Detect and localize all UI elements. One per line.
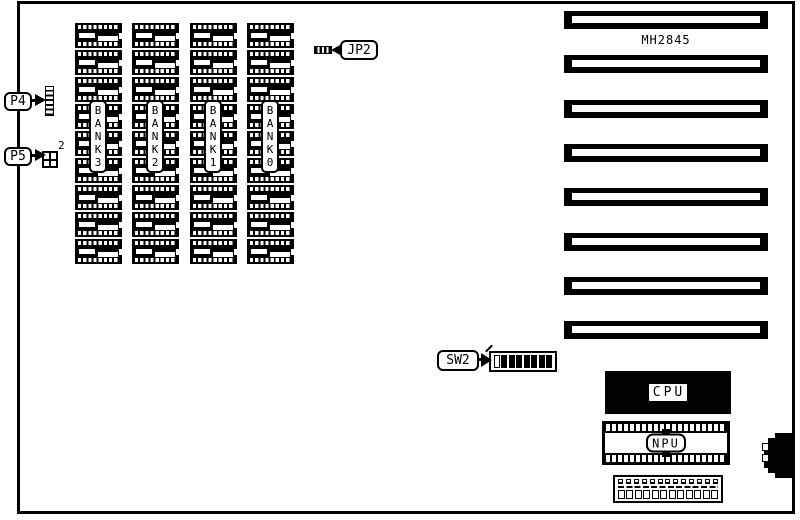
chip-notch: [119, 141, 122, 147]
chip-notch: [119, 60, 122, 66]
memory-column: BANK1: [190, 23, 237, 267]
memory-chip: [247, 212, 294, 237]
cpu-chip: CPU: [605, 371, 731, 414]
memory-chip: [132, 185, 179, 210]
chip-notch: [234, 195, 237, 201]
chip-slot-left: [79, 249, 95, 254]
slot-contact-strip: [572, 149, 760, 156]
slot-contact-strip: [572, 282, 760, 289]
connector-cell: [660, 490, 667, 499]
memory-chip: [75, 77, 122, 102]
connector-cell: [650, 479, 655, 484]
memory-column: BANK2: [132, 23, 179, 267]
chip-notch: [291, 87, 294, 93]
chip-slot-right: [98, 225, 118, 230]
memory-chip: [247, 50, 294, 75]
connector-cell: [694, 490, 701, 499]
board-chip-label: MH2845: [564, 33, 768, 47]
memory-chip: [190, 185, 237, 210]
connector-cell: [689, 479, 694, 484]
expansion-slot: [564, 11, 768, 29]
chip-slot-left: [79, 222, 95, 227]
chip-slot-left: [194, 87, 210, 92]
connector-cell: [626, 490, 633, 499]
bank-label: BANK2: [146, 100, 164, 173]
npu-label-tab-bottom: [662, 452, 670, 457]
memory-column: BANK0: [247, 23, 294, 267]
chip-notch: [176, 114, 179, 120]
chip-slot-left: [79, 195, 95, 200]
expansion-slot: [564, 144, 768, 162]
bank-label-letter: A: [152, 117, 159, 130]
memory-chip: [75, 239, 122, 264]
memory-chip: [247, 23, 294, 48]
chip-slot-left: [251, 222, 267, 227]
dip-switch-cell: [494, 355, 500, 368]
expansion-slot: [564, 100, 768, 118]
bottom-connector-bottom-row: [618, 490, 718, 499]
expansion-slot: [564, 55, 768, 73]
connector-cell: [634, 479, 639, 484]
sw2-label: SW2: [437, 350, 479, 371]
chip-notch: [291, 222, 294, 228]
connector-cell: [618, 490, 625, 499]
dip-switch-cell: [524, 355, 530, 368]
bank-label-letter: 2: [152, 156, 159, 169]
chip-notch: [119, 168, 122, 174]
memory-chip: [190, 50, 237, 75]
chip-notch: [176, 168, 179, 174]
connector-cell: [711, 490, 718, 499]
jumper-pin: [51, 153, 56, 159]
motherboard-diagram: BANK3BANK2BANK1BANK0 P4 P5 2 JP2 MH2845 …: [0, 0, 800, 520]
chip-slot-left: [251, 33, 267, 38]
bottom-connector: [613, 475, 723, 503]
dip-switch-cell: [509, 355, 515, 368]
memory-chip: [190, 23, 237, 48]
chip-notch: [234, 87, 237, 93]
chip-slot-right: [155, 198, 175, 203]
bank-label: BANK0: [261, 100, 279, 173]
chip-slot-left: [194, 222, 210, 227]
p5-label: P5: [4, 147, 32, 166]
slot-contact-strip: [572, 16, 760, 23]
expansion-slot: [564, 188, 768, 206]
bank-label-letter: K: [210, 143, 217, 156]
chip-slot-left: [251, 249, 267, 254]
bank-label-letter: N: [267, 130, 274, 143]
memory-chip: [75, 185, 122, 210]
expansion-slot: [564, 233, 768, 251]
chip-slot-right: [270, 252, 290, 257]
chip-slot-left: [194, 195, 210, 200]
chip-notch: [234, 33, 237, 39]
keyboard-connector: [762, 432, 795, 479]
bank-label-letter: A: [210, 117, 217, 130]
chip-notch: [119, 195, 122, 201]
chip-notch: [291, 114, 294, 120]
connector-cell: [705, 479, 710, 484]
chip-slot-right: [213, 63, 233, 68]
bank-label-letter: A: [267, 117, 274, 130]
bank-label-letter: K: [152, 143, 159, 156]
chip-slot-right: [155, 36, 175, 41]
chip-slot-right: [98, 198, 118, 203]
bank-label-letter: N: [152, 130, 159, 143]
memory-chip: [190, 239, 237, 264]
connector-cell: [665, 479, 670, 484]
bank-label-letter: B: [267, 104, 274, 117]
memory-chip: [247, 77, 294, 102]
p4-pin-header: [45, 86, 54, 116]
chip-slot-left: [136, 249, 152, 254]
dip-switch-cell: [516, 355, 522, 368]
memory-chip: [190, 212, 237, 237]
slot-contact-strip: [572, 60, 760, 67]
chip-slot-right: [155, 225, 175, 230]
chip-slot-right: [270, 63, 290, 68]
chip-slot-right: [98, 36, 118, 41]
bank-label: BANK3: [89, 100, 107, 173]
connector-cell: [669, 490, 676, 499]
p5-callout-arrow-icon: [35, 149, 46, 161]
dip-switch-cell: [501, 355, 507, 368]
chip-notch: [176, 87, 179, 93]
connector-cell: [703, 490, 710, 499]
chip-slot-right: [155, 252, 175, 257]
chip-notch: [119, 114, 122, 120]
chip-slot-right: [213, 90, 233, 95]
bank-label-letter: K: [267, 143, 274, 156]
chip-notch: [176, 141, 179, 147]
npu-label: NPU: [646, 434, 686, 453]
slot-contact-strip: [572, 105, 760, 112]
chip-slot-left: [136, 33, 152, 38]
dip-switch-cell: [531, 355, 537, 368]
memory-chip: [75, 212, 122, 237]
jumper-pin: [51, 161, 56, 167]
slot-contact-strip: [572, 238, 760, 245]
p4-callout-arrow-icon: [35, 94, 46, 106]
npu-socket: NPU: [602, 421, 730, 465]
chip-notch: [234, 222, 237, 228]
dip-switch-cell: [546, 355, 552, 368]
cpu-label: CPU: [649, 384, 687, 401]
chip-notch: [119, 222, 122, 228]
connector-cell: [643, 490, 650, 499]
chip-notch: [291, 60, 294, 66]
chip-slot-left: [194, 60, 210, 65]
bank-label-letter: K: [95, 143, 102, 156]
chip-notch: [119, 33, 122, 39]
connector-cell: [635, 490, 642, 499]
memory-column: BANK3: [75, 23, 122, 267]
memory-chip: [75, 50, 122, 75]
memory-chip: [190, 77, 237, 102]
chip-slot-right: [98, 63, 118, 68]
sw2-dip-switch-body: [489, 351, 557, 372]
connector-cell: [677, 490, 684, 499]
jp2-jumper: [314, 46, 332, 54]
chip-slot-left: [251, 87, 267, 92]
memory-chip: [247, 239, 294, 264]
memory-chip: [247, 185, 294, 210]
connector-cell: [713, 479, 718, 484]
p4-label: P4: [4, 92, 32, 111]
chip-slot-left: [136, 60, 152, 65]
chip-notch: [176, 222, 179, 228]
chip-notch: [291, 33, 294, 39]
chip-notch: [176, 195, 179, 201]
bank-label: BANK1: [204, 100, 222, 173]
memory-chip: [132, 77, 179, 102]
keyboard-connector-pin: [762, 454, 769, 462]
chip-notch: [176, 249, 179, 255]
chip-slot-right: [98, 252, 118, 257]
chip-notch: [176, 33, 179, 39]
bank-label-letter: 0: [267, 156, 274, 169]
chip-slot-right: [270, 90, 290, 95]
memory-chip: [132, 212, 179, 237]
chip-slot-right: [155, 63, 175, 68]
chip-notch: [291, 168, 294, 174]
bank-label-letter: 3: [95, 156, 102, 169]
expansion-slot: [564, 277, 768, 295]
chip-slot-left: [79, 33, 95, 38]
chip-notch: [176, 60, 179, 66]
chip-slot-left: [251, 195, 267, 200]
chip-slot-right: [213, 36, 233, 41]
connector-cell: [697, 479, 702, 484]
chip-notch: [234, 168, 237, 174]
memory-chip: [75, 23, 122, 48]
jumper-pin: [44, 161, 49, 167]
chip-slot-right: [98, 90, 118, 95]
chip-slot-right: [270, 198, 290, 203]
slot-contact-strip: [572, 193, 760, 200]
memory-chip: [132, 23, 179, 48]
chip-slot-right: [155, 90, 175, 95]
bank-label-letter: A: [95, 117, 102, 130]
connector-cell: [658, 479, 663, 484]
bank-label-letter: 1: [210, 156, 217, 169]
chip-slot-left: [136, 222, 152, 227]
bank-label-letter: B: [152, 104, 159, 117]
chip-notch: [119, 87, 122, 93]
bottom-connector-top-row: [618, 479, 718, 484]
chip-slot-left: [136, 195, 152, 200]
chip-notch: [119, 249, 122, 255]
chip-notch: [234, 60, 237, 66]
expansion-slot: [564, 321, 768, 339]
chip-slot-left: [79, 60, 95, 65]
chip-slot-left: [136, 87, 152, 92]
bank-label-letter: B: [210, 104, 217, 117]
chip-slot-left: [251, 60, 267, 65]
chip-notch: [291, 195, 294, 201]
chip-slot-right: [213, 198, 233, 203]
dip-switch-cell: [539, 355, 545, 368]
bank-label-letter: N: [95, 130, 102, 143]
chip-slot-right: [213, 225, 233, 230]
chip-slot-left: [79, 87, 95, 92]
connector-cell: [626, 479, 631, 484]
memory-chip: [132, 50, 179, 75]
p5-pin-number: 2: [58, 139, 65, 152]
chip-slot-right: [270, 36, 290, 41]
chip-slot-right: [213, 252, 233, 257]
chip-notch: [234, 141, 237, 147]
connector-cell: [618, 479, 623, 484]
bottom-connector-dash-row: [618, 486, 718, 488]
chip-notch: [234, 249, 237, 255]
chip-notch: [291, 141, 294, 147]
keyboard-connector-pin: [762, 443, 769, 451]
chip-slot-left: [194, 33, 210, 38]
bank-label-letter: N: [210, 130, 217, 143]
chip-notch: [291, 249, 294, 255]
sw2-callout-arrow-icon: [481, 353, 492, 367]
bank-label-letter: B: [95, 104, 102, 117]
connector-cell: [642, 479, 647, 484]
chip-notch: [234, 114, 237, 120]
connector-cell: [652, 490, 659, 499]
chip-slot-right: [270, 225, 290, 230]
connector-cell: [686, 490, 693, 499]
chip-slot-left: [194, 249, 210, 254]
connector-cell: [681, 479, 686, 484]
connector-cell: [673, 479, 678, 484]
memory-chip: [132, 239, 179, 264]
slot-contact-strip: [572, 326, 760, 333]
jp2-label: JP2: [340, 40, 378, 60]
